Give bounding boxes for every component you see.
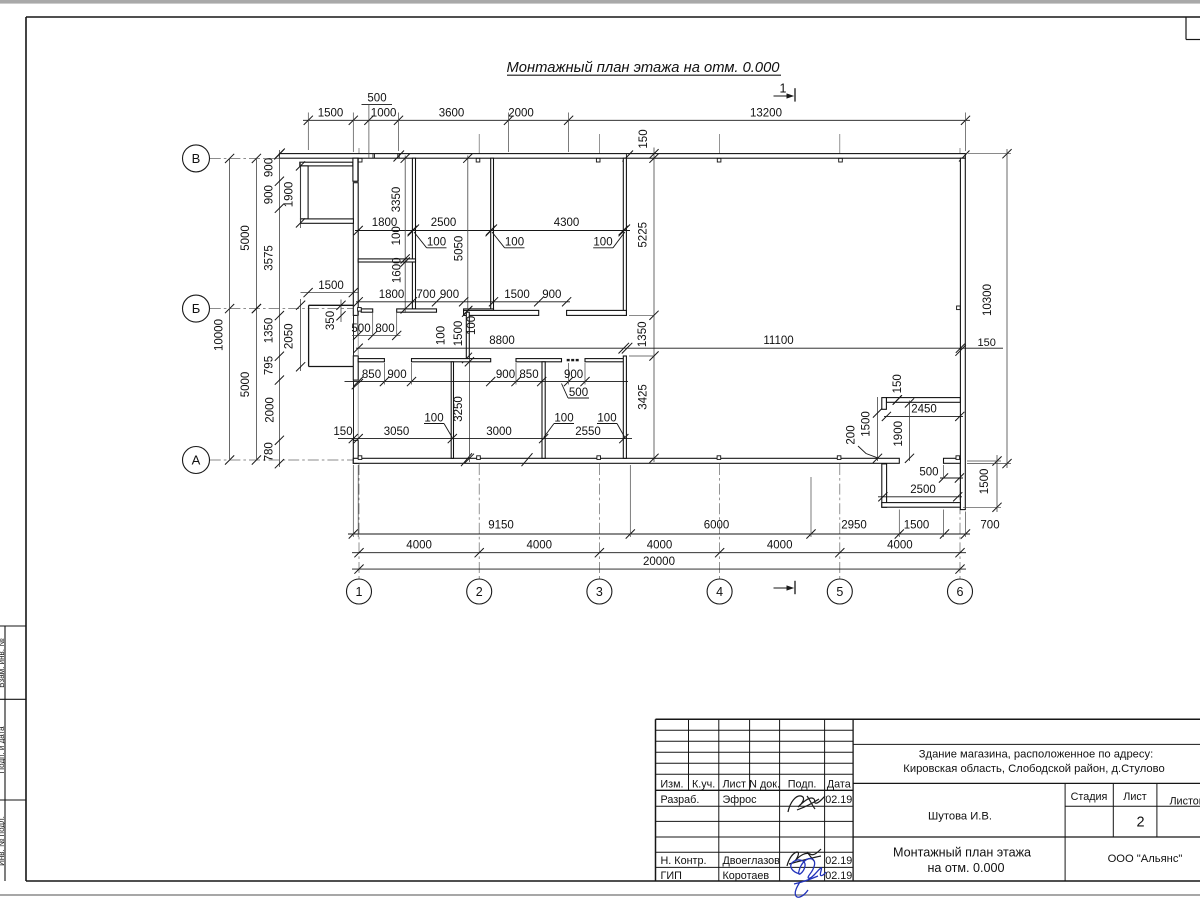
svg-text:N док.: N док.: [749, 779, 780, 791]
svg-text:Подп.: Подп.: [788, 779, 817, 791]
svg-text:Изм.: Изм.: [660, 779, 683, 791]
svg-text:2450: 2450: [911, 404, 937, 416]
svg-text:100: 100: [424, 412, 443, 424]
svg-text:Разраб.: Разраб.: [661, 794, 700, 806]
svg-text:02.19: 02.19: [825, 870, 852, 882]
svg-text:6000: 6000: [704, 520, 730, 532]
svg-text:3: 3: [596, 585, 603, 599]
svg-text:850: 850: [519, 369, 538, 381]
svg-text:8800: 8800: [489, 335, 515, 347]
svg-text:1900: 1900: [893, 421, 905, 447]
svg-text:Лист: Лист: [722, 779, 746, 791]
svg-text:2: 2: [1136, 815, 1144, 831]
svg-text:4000: 4000: [406, 539, 432, 551]
svg-text:3575: 3575: [264, 245, 276, 271]
svg-text:1500: 1500: [318, 108, 344, 120]
svg-text:200: 200: [846, 425, 858, 444]
svg-text:100: 100: [391, 226, 403, 245]
svg-text:10000: 10000: [213, 319, 225, 351]
svg-text:150: 150: [892, 374, 904, 393]
svg-text:ООО "Альянс": ООО "Альянс": [1108, 853, 1183, 865]
svg-text:700: 700: [980, 520, 999, 532]
svg-text:1500: 1500: [453, 321, 465, 347]
svg-text:1350: 1350: [637, 322, 649, 348]
svg-text:Здание магазина, расположенное: Здание магазина, расположенное по адресу…: [919, 749, 1153, 761]
svg-text:02.19: 02.19: [825, 855, 852, 867]
svg-text:4000: 4000: [527, 539, 553, 551]
svg-text:ГИП: ГИП: [661, 870, 682, 882]
svg-text:900: 900: [387, 369, 406, 381]
svg-text:3000: 3000: [486, 426, 512, 438]
svg-text:1: 1: [780, 82, 787, 96]
svg-text:3425: 3425: [638, 384, 650, 410]
svg-text:5225: 5225: [638, 222, 650, 248]
svg-text:Н. Контр.: Н. Контр.: [661, 855, 707, 867]
svg-text:350: 350: [325, 311, 337, 330]
svg-text:1500: 1500: [904, 520, 930, 532]
svg-text:5000: 5000: [240, 225, 252, 251]
svg-text:4000: 4000: [767, 539, 793, 551]
svg-text:100: 100: [597, 412, 616, 424]
svg-text:100: 100: [427, 237, 446, 249]
svg-text:5050: 5050: [453, 236, 465, 262]
svg-text:К.уч.: К.уч.: [692, 779, 715, 791]
svg-text:1800: 1800: [379, 289, 405, 301]
svg-text:2500: 2500: [910, 484, 936, 496]
svg-text:500: 500: [351, 323, 370, 335]
svg-text:2550: 2550: [575, 426, 601, 438]
svg-text:500: 500: [569, 387, 588, 399]
svg-text:900: 900: [496, 369, 515, 381]
svg-text:4: 4: [716, 585, 723, 599]
svg-text:Лист: Лист: [1123, 791, 1147, 803]
svg-text:А: А: [192, 453, 201, 468]
svg-text:Б: Б: [192, 301, 201, 316]
svg-text:100: 100: [593, 237, 612, 249]
svg-text:5000: 5000: [240, 372, 252, 398]
svg-text:100: 100: [554, 412, 573, 424]
svg-text:150: 150: [638, 129, 650, 148]
svg-text:4000: 4000: [887, 539, 913, 551]
svg-text:Двоеглазов: Двоеглазов: [723, 855, 781, 867]
svg-text:2050: 2050: [284, 324, 296, 350]
svg-text:4000: 4000: [647, 539, 673, 551]
svg-text:1500: 1500: [861, 411, 873, 437]
svg-text:150: 150: [333, 426, 352, 438]
svg-text:1350: 1350: [264, 318, 276, 344]
svg-text:500: 500: [367, 92, 386, 104]
svg-text:850: 850: [362, 369, 381, 381]
svg-text:на отм. 0.000: на отм. 0.000: [927, 861, 1004, 875]
svg-text:2: 2: [476, 585, 483, 599]
svg-text:Монтажный план этажа: Монтажный план этажа: [893, 846, 1031, 860]
svg-text:Шутова И.В.: Шутова И.В.: [928, 811, 992, 823]
svg-text:900: 900: [264, 158, 276, 177]
svg-text:Коротаев: Коротаев: [723, 870, 770, 882]
svg-text:2000: 2000: [265, 397, 277, 423]
svg-text:5: 5: [836, 585, 843, 599]
svg-text:Кировская область, Слободской: Кировская область, Слободской район, д.С…: [903, 763, 1164, 775]
svg-text:100: 100: [436, 326, 448, 345]
svg-text:11100: 11100: [763, 335, 793, 347]
svg-text:900: 900: [440, 289, 459, 301]
svg-text:100: 100: [505, 237, 524, 249]
svg-text:2500: 2500: [431, 217, 457, 229]
svg-text:3050: 3050: [384, 426, 410, 438]
svg-text:В: В: [192, 151, 201, 166]
svg-text:795: 795: [263, 356, 275, 375]
svg-text:10300: 10300: [982, 284, 994, 316]
svg-text:150: 150: [978, 337, 996, 349]
svg-text:500: 500: [919, 467, 938, 479]
svg-text:Листов: Листов: [1169, 795, 1200, 807]
svg-text:3350: 3350: [391, 187, 403, 213]
svg-text:20000: 20000: [643, 556, 675, 568]
svg-text:Монтажный план этажа на отм. 0: Монтажный план этажа на отм. 0.000: [507, 60, 781, 76]
svg-text:900: 900: [564, 369, 583, 381]
svg-text:Дата: Дата: [827, 779, 851, 791]
svg-text:6: 6: [957, 585, 964, 599]
svg-text:9150: 9150: [488, 520, 514, 532]
svg-text:3250: 3250: [453, 396, 465, 422]
svg-text:02.19: 02.19: [825, 794, 852, 806]
svg-text:Взам. инв. №: Взам. инв. №: [0, 638, 6, 688]
svg-text:Стадия: Стадия: [1071, 791, 1108, 803]
svg-text:Инв. № подл.: Инв. № подл.: [0, 816, 6, 866]
svg-text:2950: 2950: [841, 520, 867, 532]
svg-text:1900: 1900: [284, 182, 296, 208]
svg-text:900: 900: [542, 289, 561, 301]
svg-text:700: 700: [416, 289, 435, 301]
svg-text:1500: 1500: [979, 469, 991, 495]
svg-text:1500: 1500: [504, 289, 530, 301]
svg-text:100: 100: [466, 316, 478, 335]
svg-text:1500: 1500: [318, 280, 344, 292]
svg-text:2000: 2000: [508, 108, 534, 120]
svg-text:1600: 1600: [392, 258, 404, 284]
svg-text:900: 900: [264, 185, 276, 204]
svg-text:13200: 13200: [750, 108, 782, 120]
svg-text:Эфрос: Эфрос: [723, 794, 758, 806]
svg-text:1: 1: [356, 585, 363, 599]
svg-text:Подп. и дата: Подп. и дата: [0, 726, 6, 774]
svg-text:4300: 4300: [554, 217, 580, 229]
svg-text:1000: 1000: [371, 108, 397, 120]
svg-text:780: 780: [264, 442, 276, 461]
svg-text:800: 800: [375, 323, 394, 335]
svg-text:3600: 3600: [439, 108, 465, 120]
